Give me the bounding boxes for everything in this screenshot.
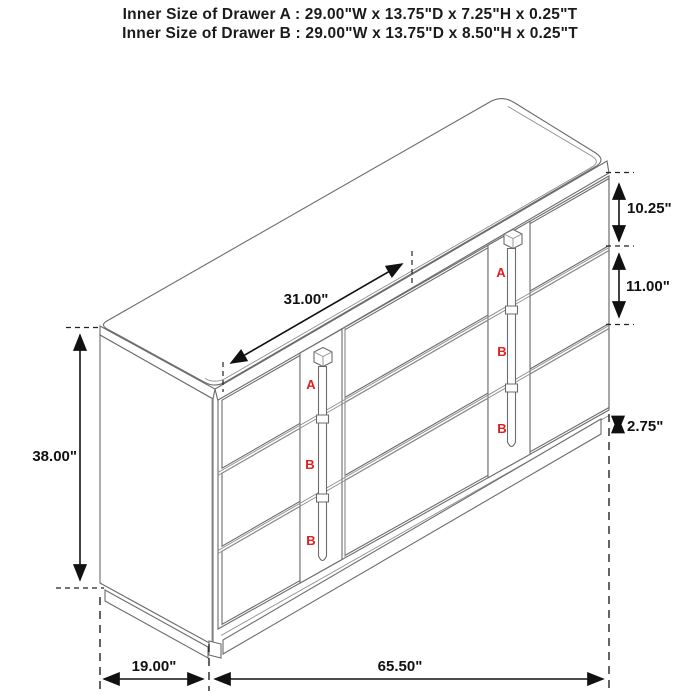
left-handle-rod (319, 367, 327, 561)
middle-width-label: 31.00" (284, 291, 329, 308)
overall-height-label: 38.00" (32, 448, 77, 465)
left-drawer-b1-label: B (305, 457, 314, 472)
front-left-foot (209, 641, 221, 658)
right-drawer-b1-label: B (497, 344, 506, 359)
dim-base-height: 2.75" (618, 418, 663, 436)
overall-width-label: 65.50" (378, 658, 423, 675)
base-height-label: 2.75" (627, 418, 663, 435)
dimension-diagram-page: Inner Size of Drawer A : 29.00"W x 13.75… (0, 0, 700, 700)
left-drawer-b2-label: B (306, 533, 315, 548)
right-handle-rod (508, 249, 516, 447)
right-drawer-a-label: A (496, 265, 506, 280)
right-drawer-b2-label: B (497, 421, 506, 436)
left-handle-collar-2 (317, 494, 329, 502)
drawer-a-height-label: 10.25" (627, 200, 672, 217)
right-handle-collar-2 (506, 384, 518, 392)
right-handle-collar-1 (506, 306, 518, 314)
dim-overall-height: 38.00" (32, 328, 104, 589)
dim-drawer-heights: 10.25" 11.00" (606, 173, 672, 325)
left-handle-collar-1 (317, 415, 329, 423)
cabinet-drawing: A B B A B B (100, 99, 609, 658)
left-drawer-a-label: A (306, 377, 316, 392)
depth-label: 19.00" (132, 658, 177, 675)
drawer-b-height-label: 11.00" (626, 278, 670, 295)
dresser-isometric-drawing: A B B A B B 31.00" (0, 0, 700, 700)
